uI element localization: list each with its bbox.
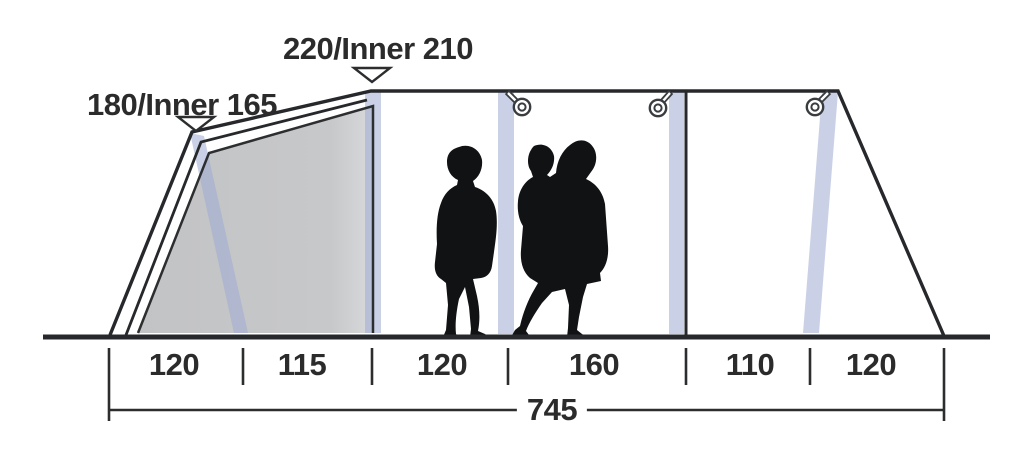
air-pole-middle-2 [669, 92, 684, 334]
width-segment-label: 110 [726, 349, 775, 380]
adult-with-child-silhouette [511, 140, 608, 337]
main-height-label: 220/Inner 210 [283, 33, 473, 64]
air-pole-middle-1 [498, 92, 514, 334]
person-silhouette [435, 146, 497, 337]
lantern-hook-icon [650, 92, 671, 116]
tent-profile-drawing [0, 0, 1024, 468]
width-segment-label: 120 [846, 349, 896, 380]
tent-dimension-diagram: 180/Inner 165 220/Inner 210 120 115 120 … [0, 0, 1024, 468]
width-segment-label: 115 [278, 349, 327, 380]
width-segment-label: 160 [569, 349, 619, 380]
air-pole-rear-slanted [803, 92, 838, 333]
width-segment-label: 120 [149, 349, 199, 380]
total-width-label: 745 [517, 394, 587, 425]
pointer-triangle-icon [354, 68, 390, 82]
width-segment-label: 120 [417, 349, 467, 380]
front-height-label: 180/Inner 165 [87, 89, 277, 120]
